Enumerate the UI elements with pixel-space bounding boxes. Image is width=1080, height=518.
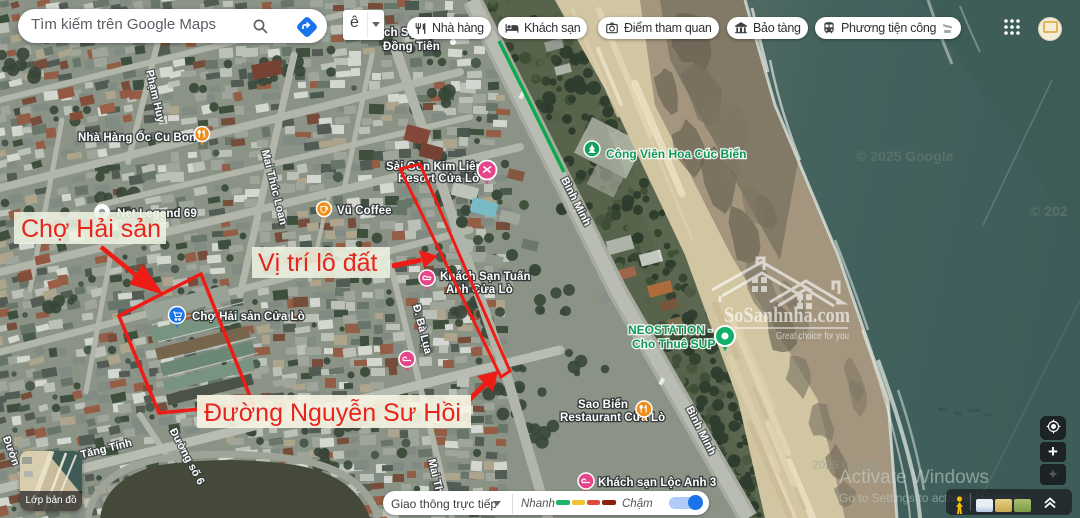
svg-text:Chợ Hải sản Cửa Lò: Chợ Hải sản Cửa Lò bbox=[192, 311, 305, 323]
svg-text:Đ. Bà Lụa: Đ. Bà Lụa bbox=[410, 303, 434, 356]
svg-text:Đồng Tiên: Đồng Tiên bbox=[383, 41, 440, 53]
svg-text:Đườn: Đườn bbox=[0, 435, 22, 468]
svg-text:© 202: © 202 bbox=[1030, 203, 1068, 219]
svg-text:Đường Nguyễn Sư Hồi: Đường Nguyễn Sư Hồi bbox=[204, 398, 461, 427]
svg-text:Great choice for you: Great choice for you bbox=[776, 331, 849, 342]
svg-text:NEOSTATION -: NEOSTATION - bbox=[628, 323, 712, 337]
svg-text:© 2025 Google: © 2025 Google bbox=[856, 148, 954, 164]
svg-text:Mai Thúc Loan: Mai Thúc Loan bbox=[259, 148, 289, 226]
svg-text:Phạm Huy: Phạm Huy bbox=[143, 69, 167, 125]
svg-text:Cho Thuê SUP: Cho Thuê SUP bbox=[632, 337, 715, 351]
svg-text:Bình Minh: Bình Minh bbox=[683, 404, 718, 457]
svg-text:Tăng Tính: Tăng Tính bbox=[79, 437, 133, 461]
svg-text:SoSanhnha.com: SoSanhnha.com bbox=[724, 302, 850, 327]
svg-text:Bình Minh: Bình Minh bbox=[558, 175, 593, 228]
svg-text:Resort Cửa Lò: Resort Cửa Lò bbox=[398, 173, 479, 185]
svg-text:Sao Biển: Sao Biển bbox=[578, 399, 628, 411]
svg-text:Công Viên Hoa Cúc Biển: Công Viên Hoa Cúc Biển bbox=[606, 147, 746, 161]
svg-text:Khách sạn Lộc Anh 3: Khách sạn Lộc Anh 3 bbox=[598, 477, 716, 489]
svg-text:Đường số 6: Đường số 6 bbox=[167, 426, 207, 487]
svg-text:Nhà Hàng Ốc Cu Bon: Nhà Hàng Ốc Cu Bon bbox=[78, 130, 196, 144]
svg-text:Chợ Hải sản: Chợ Hải sản bbox=[21, 215, 161, 243]
svg-text:Vị trí lô đất: Vị trí lô đất bbox=[258, 249, 378, 277]
svg-text:Vũ Coffee: Vũ Coffee bbox=[337, 205, 392, 217]
